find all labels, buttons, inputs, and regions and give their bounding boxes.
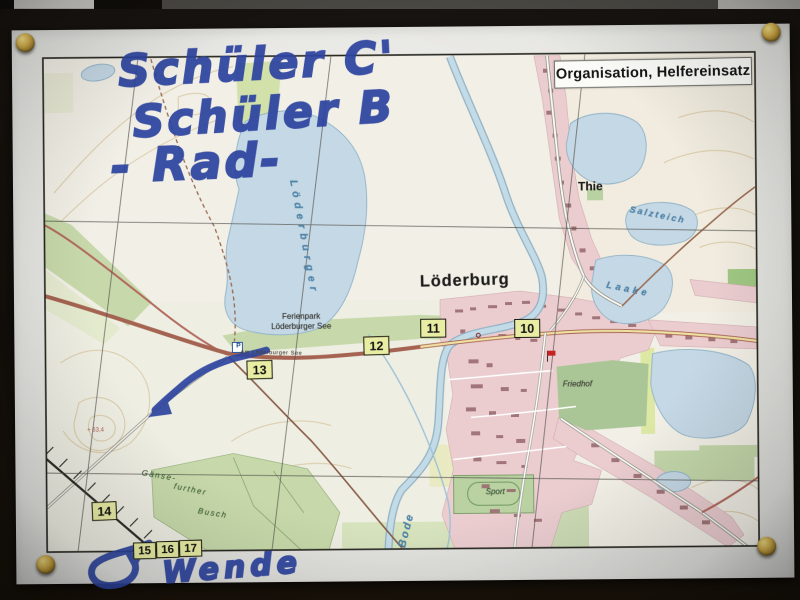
svg-text:+ 63,4: + 63,4 xyxy=(87,428,105,434)
route-marker-11: 11 xyxy=(420,319,446,338)
paper-map-photo: + 63,4 xyxy=(0,0,800,600)
street-label: Am Löderburger See xyxy=(240,350,302,357)
route-marker-15: 15 xyxy=(133,542,156,560)
handwriting-rad: - Rad- xyxy=(110,132,284,193)
sport-label: Sport xyxy=(486,487,505,496)
map-title-box: Organisation, Helfereinsatz xyxy=(554,57,753,89)
town-label-loederburg: Löderburg xyxy=(420,270,510,291)
photo-of-pinned-map: + 63,4 xyxy=(0,0,800,600)
ferienpark-line2: Löderburger See xyxy=(258,321,344,332)
route-marker-13: 13 xyxy=(246,360,272,380)
cemetery-area xyxy=(557,360,650,431)
cemetery-label: Friedhof xyxy=(563,379,592,388)
route-marker-10: 10 xyxy=(514,319,540,338)
push-pin-top-right xyxy=(762,23,781,42)
ferienpark-label: Ferienpark Löderburger See xyxy=(258,311,344,332)
push-pin-bottom-left xyxy=(36,555,55,574)
route-marker-12: 12 xyxy=(363,336,389,356)
push-pin-top-left xyxy=(16,33,35,52)
push-pin-bottom-right xyxy=(757,537,776,556)
route-marker-14: 14 xyxy=(91,501,117,521)
map-title-text: Organisation, Helfereinsatz xyxy=(556,63,751,83)
district-label-thie: Thie xyxy=(578,179,603,193)
parking-letter: P xyxy=(234,342,242,349)
